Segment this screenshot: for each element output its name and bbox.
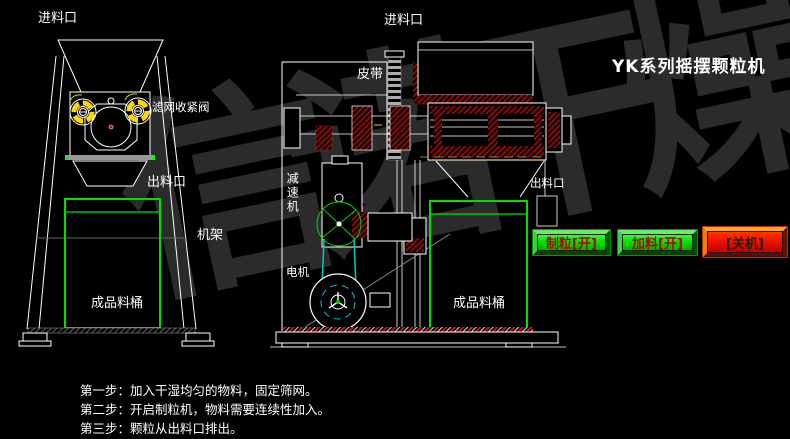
drive-shaft: [284, 106, 428, 150]
frame-label: 机架: [197, 229, 223, 243]
instruction-step1: 第一步：加入干湿均匀的物料，固定筛网。: [80, 380, 318, 399]
front-inlet-label: 进料口: [38, 12, 77, 26]
shutdown-button-label: [关机]: [726, 233, 764, 252]
discharge-spout: [537, 160, 557, 226]
front-outlet-label: 出料口: [147, 176, 186, 190]
discharge-funnel: [436, 161, 544, 197]
side-base: [270, 327, 566, 347]
hmi-screen: 信诺干燥: [0, 0, 790, 439]
granulating-roller: [428, 103, 571, 160]
belt-top-cap: [385, 51, 404, 57]
filter-valve-label: 滤网收紧阀: [152, 101, 210, 114]
side-outlet-label: 出料口: [530, 177, 565, 190]
belt-label: 皮带: [357, 68, 383, 82]
granulate-button[interactable]: 制粒[开]: [533, 230, 610, 255]
instruction-step2: 第二步：开启制粒机，物料需要连续性加入。: [80, 399, 330, 418]
front-outlet-assembly: [65, 155, 155, 186]
side-inlet-label: 进料口: [384, 14, 423, 28]
side-barrel-label: 成品料桶: [453, 297, 505, 311]
motor: [310, 274, 390, 333]
side-hopper: [418, 42, 533, 104]
feed-button-label: 加料[开]: [632, 233, 683, 252]
page-title: YK系列摇摆颗粒机: [612, 52, 765, 77]
motor-label: 电机: [286, 266, 309, 279]
instruction-step3: 第三步：颗粒从出料口排出。: [80, 418, 243, 437]
pulley-mount-hatch: [352, 212, 368, 238]
feed-button[interactable]: 加料[开]: [618, 230, 697, 255]
front-barrel-label: 成品料桶: [91, 297, 143, 311]
granulate-button-label: 制粒[开]: [546, 233, 597, 252]
bearing-box: [368, 213, 412, 241]
front-base: [19, 328, 214, 346]
front-hopper: [58, 40, 163, 92]
side-view: [270, 42, 571, 347]
reducer-label: 减速机: [285, 172, 298, 214]
shutdown-button[interactable]: [关机]: [703, 227, 787, 257]
